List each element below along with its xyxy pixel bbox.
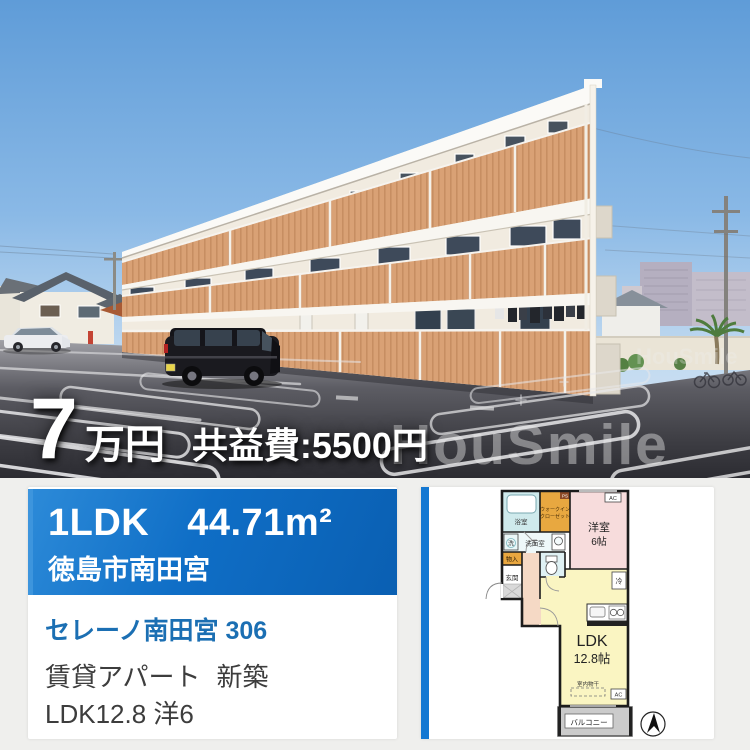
common-fee: 共益費:5500円 <box>192 417 428 469</box>
listing-page: HouSmile HouSmile 7 万円 共益費:5500円 1LDK44.… <box>0 0 750 750</box>
layout-area-banner: 1LDK44.71m² 徳島市南田宮 <box>28 489 397 595</box>
label-balcony: バルコニー <box>570 718 607 727</box>
label-washer: 洗 <box>508 540 514 548</box>
property-condition: 新築 <box>216 662 268 692</box>
listing-details: セレーノ南田宮 306 賃貸アパート新築 LDK12.8 洋6 <box>28 595 397 733</box>
property-type-line: 賃貸アパート新築 <box>45 659 397 696</box>
label-ldk: LDK <box>576 633 607 650</box>
listing-info-section: 1LDK44.71m² 徳島市南田宮 セレーノ南田宮 306 賃貸アパート新築 … <box>0 478 750 750</box>
watermark-partial: HouSmile <box>636 344 737 369</box>
label-fridge: 冷 <box>616 577 623 586</box>
label-ac-2: AC <box>615 693 623 699</box>
layout-and-area: 1LDK44.71m² <box>48 502 397 546</box>
hallway <box>522 552 540 626</box>
price-overlay: 7 万円 共益費:5500円 <box>30 386 428 472</box>
label-drying: 室内物干 <box>577 680 600 688</box>
layout-type: 1LDK <box>48 502 149 544</box>
label-wic-1: ウォークイン <box>540 506 570 513</box>
bathtub-icon <box>507 495 536 513</box>
property-category: 賃貸アパート <box>45 662 200 692</box>
toilet-icon <box>546 562 557 575</box>
label-ac: AC <box>609 496 617 502</box>
floorplan-card: 浴室 ウォークイン クローゼット PS 洋室 6帖 AC 洗 洗面室 物入 玄関… <box>421 487 714 739</box>
location: 徳島市南田宮 <box>48 548 397 587</box>
label-bath: 浴室 <box>515 517 529 526</box>
label-wic-2: クローゼット <box>540 513 570 520</box>
label-storage: 物入 <box>506 556 518 564</box>
floorplan-drawing: 浴室 ウォークイン クローゼット PS 洋室 6帖 AC 洗 洗面室 物入 玄関… <box>421 487 714 739</box>
room-breakdown: LDK12.8 洋6 <box>45 696 397 733</box>
label-washroom: 洗面室 <box>525 539 545 548</box>
listing-summary-card: 1LDK44.71m² 徳島市南田宮 セレーノ南田宮 306 賃貸アパート新築 … <box>28 487 397 739</box>
floor-area: 44.71m² <box>187 502 332 544</box>
label-western: 洋室 <box>588 520 610 534</box>
property-name-link[interactable]: セレーノ南田宮 306 <box>45 611 397 647</box>
rent-amount: 7 <box>30 386 78 472</box>
label-western-size: 6帖 <box>591 535 607 548</box>
label-ps: PS <box>562 494 568 499</box>
kitchen-sink-icon <box>590 607 605 617</box>
label-ldk-size: 12.8帖 <box>574 651 611 666</box>
rent-unit: 万円 <box>85 412 165 470</box>
watermark: HouSmile <box>390 413 669 477</box>
property-photo: HouSmile HouSmile 7 万円 共益費:5500円 <box>0 0 750 478</box>
compass-icon <box>641 712 665 736</box>
label-entrance: 玄関 <box>506 573 519 582</box>
